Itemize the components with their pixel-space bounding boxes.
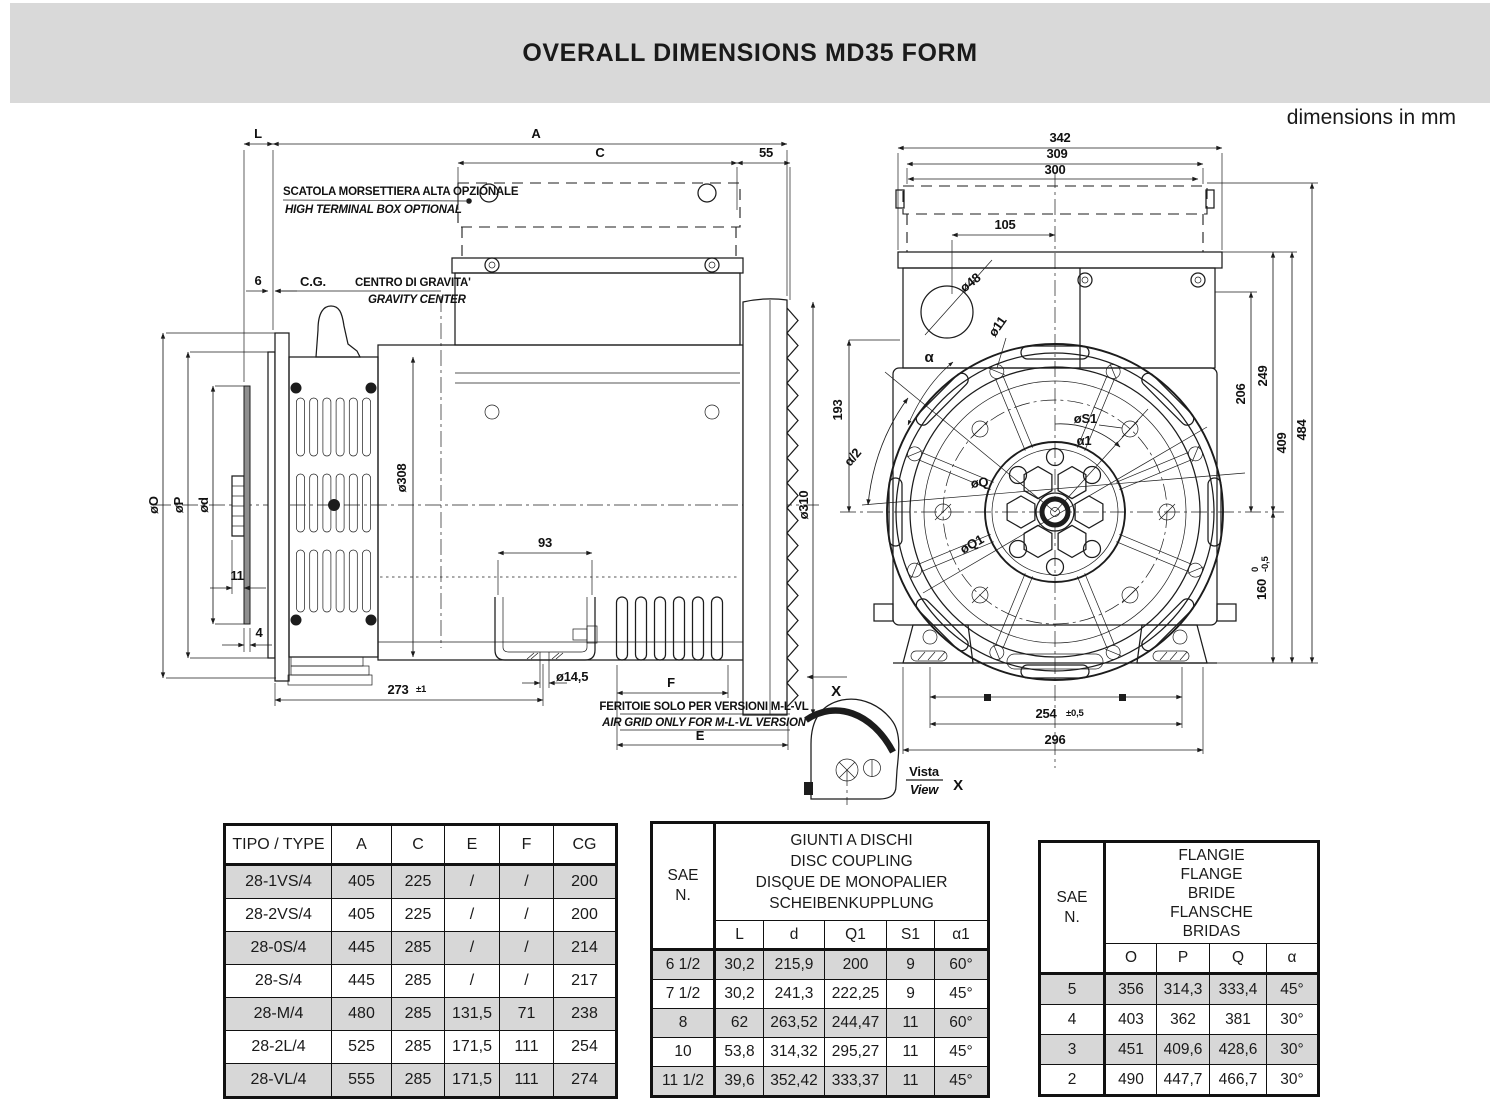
table-row: 1053,8314,32295,271145°: [652, 1038, 989, 1067]
cell: 9: [887, 980, 935, 1009]
cell: 28-0S/4: [225, 932, 332, 965]
cell: 45°: [935, 980, 989, 1009]
cell: 215,9: [764, 950, 825, 980]
cell: 217: [554, 965, 617, 998]
cell: 285: [392, 965, 445, 998]
cell: 45°: [935, 1038, 989, 1067]
cell: 30°: [1267, 1065, 1319, 1096]
dim-C: C: [595, 145, 605, 160]
view-detail-ref: X: [953, 777, 963, 794]
note-cg-en: GRAVITY CENTER: [368, 294, 467, 306]
cell: /: [445, 965, 500, 998]
dim-F: F: [667, 675, 675, 690]
cell: 362: [1157, 1005, 1210, 1035]
dim-phi308: ø308: [394, 464, 409, 493]
cell: 254: [554, 1031, 617, 1064]
dim-55: 55: [759, 145, 773, 160]
cell: /: [445, 932, 500, 965]
sae-header: SAE N.: [1040, 842, 1105, 974]
cell: 28-VL/4: [225, 1064, 332, 1098]
cell: 409,6: [1157, 1035, 1210, 1065]
cell: 466,7: [1210, 1065, 1267, 1096]
note-terminal-box-it: SCATOLA MORSETTIERA ALTA OPZIONALE: [283, 186, 519, 198]
dim-309: 309: [1046, 146, 1067, 161]
note-cg-it: CENTRO DI GRAVITA': [355, 277, 471, 289]
cell: 238: [554, 998, 617, 1031]
cell: 3: [1040, 1035, 1105, 1065]
cell: 555: [332, 1064, 392, 1098]
table-title: FLANGIE FLANGE BRIDE FLANSCHE BRIDAS: [1105, 842, 1319, 944]
cell: 285: [392, 998, 445, 1031]
view-detail-label-it: Vista: [909, 764, 940, 779]
cell: 28-2VS/4: [225, 899, 332, 932]
note-terminal-box-en: HIGH TERMINAL BOX OPTIONAL: [285, 204, 462, 216]
cell: 333,4: [1210, 974, 1267, 1005]
side-view-drawing: L A C 55 SCATOLA MORSETTIERA ALTA OPZION…: [146, 126, 847, 750]
dim-A: A: [531, 126, 541, 141]
dim-254: 254: [1035, 706, 1057, 721]
col-header: P: [1157, 944, 1210, 974]
cell: 525: [332, 1031, 392, 1064]
dim-L: L: [254, 126, 262, 141]
cell: 71: [500, 998, 554, 1031]
col-header: F: [500, 825, 554, 865]
cell: 30,2: [715, 980, 764, 1009]
page-title-bar: OVERALL DIMENSIONS MD35 FORM: [10, 3, 1490, 103]
cell: 28-1VS/4: [225, 865, 332, 899]
disc-coupling-table: SAE N. GIUNTI A DISCHI DISC COUPLING DIS…: [650, 821, 990, 1098]
cell: 6 1/2: [652, 950, 715, 980]
table-row: 7 1/230,2241,3222,25945°: [652, 980, 989, 1009]
dim-249: 249: [1255, 365, 1270, 386]
col-header: Q1: [825, 921, 887, 950]
cell: 225: [392, 899, 445, 932]
col-header: A: [332, 825, 392, 865]
cell: 263,52: [764, 1009, 825, 1038]
cell: 9: [887, 950, 935, 980]
cell: 445: [332, 932, 392, 965]
dim-11: 11: [230, 568, 243, 583]
cell: 285: [392, 932, 445, 965]
cell: 445: [332, 965, 392, 998]
air-intake-grille: [288, 306, 378, 685]
cell: 381: [1210, 1005, 1267, 1035]
table-row: 2490447,7466,730°: [1040, 1065, 1319, 1096]
cell: 111: [500, 1031, 554, 1064]
table-row: 440336238130°: [1040, 1005, 1319, 1035]
cell: 45°: [935, 1067, 989, 1097]
cell: 11: [887, 1038, 935, 1067]
table-row: 28-M/4480285131,571238: [225, 998, 617, 1031]
cell: 480: [332, 998, 392, 1031]
dim-160-tol-lo: -0,5: [1260, 556, 1271, 572]
dim-4: 4: [255, 625, 263, 640]
dim-phid: ød: [196, 497, 211, 513]
front-terminal-box: [898, 252, 1222, 368]
cell: 405: [332, 865, 392, 899]
cell: 285: [392, 1064, 445, 1098]
dim-273-tol: ±1: [416, 684, 427, 695]
cell: 60°: [935, 1009, 989, 1038]
cell: /: [500, 932, 554, 965]
cell: 5: [1040, 974, 1105, 1005]
cell: 28-M/4: [225, 998, 332, 1031]
dim-160: 160: [1254, 579, 1269, 600]
cell: 2: [1040, 1065, 1105, 1096]
cell: 200: [554, 865, 617, 899]
col-header: d: [764, 921, 825, 950]
cell: /: [500, 865, 554, 899]
dim-phiQ1: øQ1: [957, 531, 986, 556]
dim-alpha-half: α/2: [841, 445, 864, 469]
dim-193: 193: [830, 399, 845, 420]
cell: 222,25: [825, 980, 887, 1009]
cell: 28-2L/4: [225, 1031, 332, 1064]
dim-300: 300: [1044, 162, 1065, 177]
table-row: 5356314,3333,445°: [1040, 974, 1319, 1005]
dim-phiP: øP: [171, 496, 186, 513]
dim-93: 93: [538, 535, 552, 550]
table-row: 28-VL/4555285171,5111274: [225, 1064, 617, 1098]
cell: 39,6: [715, 1067, 764, 1097]
table-title-row: SAE N. GIUNTI A DISCHI DISC COUPLING DIS…: [652, 823, 989, 921]
cell: 451: [1105, 1035, 1157, 1065]
table-title-row: SAE N. FLANGIE FLANGE BRIDE FLANSCHE BRI…: [1040, 842, 1319, 944]
cell: 131,5: [445, 998, 500, 1031]
dim-409: 409: [1274, 432, 1289, 453]
type-table: TIPO / TYPE A C E F CG 28-1VS/4405225//2…: [223, 823, 618, 1099]
cell: 244,47: [825, 1009, 887, 1038]
dim-E: E: [696, 728, 705, 743]
dim-342: 342: [1049, 130, 1070, 145]
dim-phiQ: øQ: [970, 474, 989, 491]
cell: 214: [554, 932, 617, 965]
serrated-flange-edge: [743, 299, 798, 715]
cell: 30,2: [715, 950, 764, 980]
cell: 352,42: [764, 1067, 825, 1097]
cell: 60°: [935, 950, 989, 980]
table-row: 28-1VS/4405225//200: [225, 865, 617, 899]
page-title: OVERALL DIMENSIONS MD35 FORM: [522, 39, 977, 68]
cell: 295,27: [825, 1038, 887, 1067]
cell: 11 1/2: [652, 1067, 715, 1097]
table-row: 6 1/230,2215,9200960°: [652, 950, 989, 980]
cell: 200: [554, 899, 617, 932]
note-air-grid-it: FERITOIE SOLO PER VERSIONI M-L-VL: [599, 701, 808, 713]
dim-206: 206: [1233, 383, 1248, 404]
cell: 4: [1040, 1005, 1105, 1035]
table-row: 28-2VS/4405225//200: [225, 899, 617, 932]
dim-273: 273: [387, 682, 408, 697]
cell: 314,32: [764, 1038, 825, 1067]
cell: 405: [332, 899, 392, 932]
table-title: GIUNTI A DISCHI DISC COUPLING DISQUE DE …: [715, 823, 989, 921]
cell: 241,3: [764, 980, 825, 1009]
col-header: C: [392, 825, 445, 865]
cell: 8: [652, 1009, 715, 1038]
dim-phi11: ø11: [985, 313, 1009, 339]
cell: 356: [1105, 974, 1157, 1005]
cell: 45°: [1267, 974, 1319, 1005]
air-grid-slots: [617, 597, 723, 660]
table-row: 28-2L/4525285171,5111254: [225, 1031, 617, 1064]
cell: 403: [1105, 1005, 1157, 1035]
col-header: L: [715, 921, 764, 950]
dim-phi310: ø310: [796, 491, 811, 520]
cell: 11: [887, 1067, 935, 1097]
dim-phi14-5: ø14,5: [556, 669, 588, 684]
table-row: 862263,52244,471160°: [652, 1009, 989, 1038]
cell: 314,3: [1157, 974, 1210, 1005]
cell: 333,37: [825, 1067, 887, 1097]
cell: 285: [392, 1031, 445, 1064]
col-header: S1: [887, 921, 935, 950]
cell: 200: [825, 950, 887, 980]
cell: /: [500, 899, 554, 932]
view-x-detail: Vista View X: [804, 699, 963, 805]
dim-alpha: α: [924, 349, 934, 366]
cell: 447,7: [1157, 1065, 1210, 1096]
cell: 30°: [1267, 1035, 1319, 1065]
dim-phiS1: øS1: [1074, 411, 1097, 426]
cell: 274: [554, 1064, 617, 1098]
col-header: E: [445, 825, 500, 865]
flange-face: [862, 338, 1245, 680]
dim-254-tol: ±0,5: [1066, 708, 1085, 719]
foot-channel-section: [495, 597, 597, 660]
dim-phiO: øO: [146, 496, 161, 514]
table-header-row: TIPO / TYPE A C E F CG: [225, 825, 617, 865]
cell: 10: [652, 1038, 715, 1067]
table-row: 3451409,6428,630°: [1040, 1035, 1319, 1065]
cell: 171,5: [445, 1064, 500, 1098]
col-header: TIPO / TYPE: [225, 825, 332, 865]
cell: 490: [1105, 1065, 1157, 1096]
col-header: Q: [1210, 944, 1267, 974]
cell: 7 1/2: [652, 980, 715, 1009]
cell: 428,6: [1210, 1035, 1267, 1065]
dim-105: 105: [994, 217, 1015, 232]
dim-484: 484: [1294, 418, 1309, 440]
sae-header: SAE N.: [652, 823, 715, 950]
cell: /: [445, 899, 500, 932]
view-x-arrow-label: X: [831, 683, 841, 700]
dim-6: 6: [254, 273, 261, 288]
table-row: 28-S/4445285//217: [225, 965, 617, 998]
dim-296: 296: [1044, 732, 1065, 747]
cell: 111: [500, 1064, 554, 1098]
front-view-drawing: 342 309 300 105 ø48 ø11 α α/2 193 øS1 α1…: [804, 130, 1318, 805]
view-detail-label-en: View: [910, 782, 939, 797]
cell: 11: [887, 1009, 935, 1038]
dim-alpha1: α1: [1077, 433, 1092, 448]
table-row: 28-0S/4445285//214: [225, 932, 617, 965]
cell: 225: [392, 865, 445, 899]
col-header: α: [1267, 944, 1319, 974]
cell: /: [500, 965, 554, 998]
note-cg-abbr: C.G.: [300, 274, 326, 289]
col-header: CG: [554, 825, 617, 865]
cell: 62: [715, 1009, 764, 1038]
col-header: O: [1105, 944, 1157, 974]
technical-drawing: L A C 55 SCATOLA MORSETTIERA ALTA OPZION…: [0, 125, 1500, 815]
frame-and-terminal-box: [378, 258, 743, 660]
cell: 53,8: [715, 1038, 764, 1067]
col-header: α1: [935, 921, 989, 950]
cell: /: [445, 865, 500, 899]
cell: 28-S/4: [225, 965, 332, 998]
cell: 30°: [1267, 1005, 1319, 1035]
table-row: 11 1/239,6352,42333,371145°: [652, 1067, 989, 1097]
flange-table: SAE N. FLANGIE FLANGE BRIDE FLANSCHE BRI…: [1038, 840, 1320, 1097]
cell: 171,5: [445, 1031, 500, 1064]
